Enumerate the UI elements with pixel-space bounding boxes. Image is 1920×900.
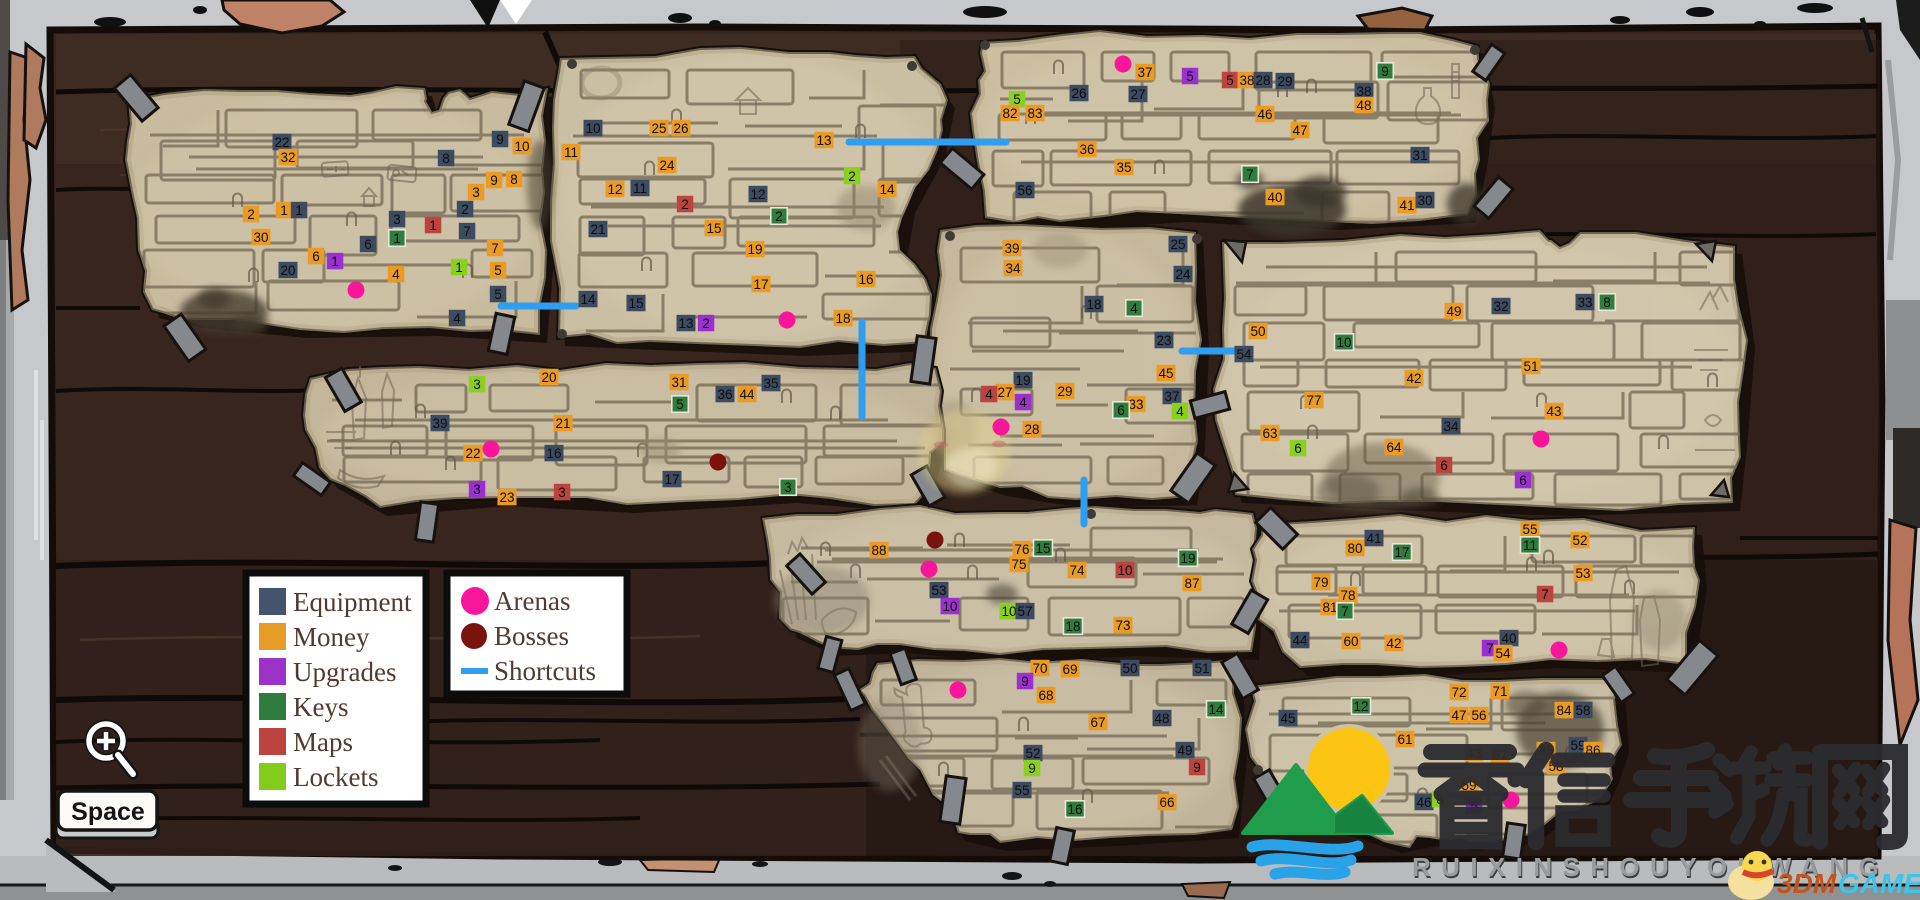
svg-text:77: 77	[1306, 393, 1321, 408]
svg-text:26: 26	[1071, 86, 1086, 101]
svg-text:2: 2	[702, 316, 710, 331]
svg-text:Lockets: Lockets	[293, 762, 378, 792]
svg-text:4: 4	[985, 387, 993, 402]
svg-text:9: 9	[1021, 674, 1029, 689]
svg-text:37: 37	[1164, 389, 1179, 404]
svg-text:31: 31	[671, 375, 686, 390]
svg-text:1: 1	[331, 254, 339, 269]
svg-text:38: 38	[1356, 84, 1371, 99]
svg-text:25: 25	[1170, 237, 1185, 252]
svg-text:26: 26	[673, 121, 688, 136]
svg-text:14: 14	[580, 292, 596, 307]
svg-text:Maps: Maps	[293, 727, 353, 757]
svg-text:32: 32	[280, 150, 295, 165]
svg-text:21: 21	[590, 222, 605, 237]
svg-text:47: 47	[1292, 123, 1307, 138]
svg-text:56: 56	[1017, 183, 1032, 198]
svg-text:23: 23	[1156, 333, 1171, 348]
svg-text:14: 14	[879, 182, 895, 197]
svg-text:29: 29	[1277, 74, 1292, 89]
svg-text:66: 66	[1159, 795, 1174, 810]
svg-text:59: 59	[1570, 738, 1585, 753]
svg-text:6: 6	[364, 237, 372, 252]
svg-text:27: 27	[997, 385, 1012, 400]
svg-text:80: 80	[1347, 541, 1362, 556]
svg-text:41: 41	[1366, 531, 1381, 546]
svg-text:10: 10	[1336, 335, 1351, 350]
svg-text:10: 10	[1117, 563, 1132, 578]
svg-text:15: 15	[628, 296, 643, 311]
svg-text:4: 4	[453, 311, 461, 326]
svg-text:GAME: GAME	[1838, 868, 1920, 899]
svg-text:49: 49	[1446, 304, 1461, 319]
svg-text:25: 25	[651, 121, 666, 136]
svg-text:6: 6	[1440, 458, 1448, 473]
svg-text:5: 5	[494, 287, 502, 302]
svg-text:47: 47	[1451, 708, 1466, 723]
svg-text:5: 5	[1226, 73, 1234, 88]
svg-text:6: 6	[1117, 403, 1125, 418]
svg-text:82: 82	[1002, 106, 1017, 121]
svg-text:54: 54	[1495, 646, 1511, 661]
svg-text:9: 9	[1381, 64, 1389, 79]
svg-text:6: 6	[1294, 441, 1302, 456]
svg-text:19: 19	[747, 242, 762, 257]
svg-text:9: 9	[1193, 760, 1201, 775]
svg-text:64: 64	[1386, 440, 1402, 455]
svg-text:60: 60	[1343, 634, 1358, 649]
svg-text:1: 1	[295, 203, 303, 218]
svg-text:32: 32	[1493, 299, 1508, 314]
svg-text:63: 63	[1262, 426, 1277, 441]
svg-text:52: 52	[1025, 746, 1040, 761]
svg-text:46: 46	[1257, 107, 1272, 122]
svg-text:55: 55	[1522, 522, 1537, 537]
svg-text:4: 4	[392, 267, 400, 282]
svg-text:11: 11	[633, 181, 647, 196]
svg-text:45: 45	[1280, 711, 1295, 726]
svg-text:29: 29	[1057, 384, 1072, 399]
svg-text:39: 39	[1004, 241, 1019, 256]
svg-text:83: 83	[1027, 106, 1042, 121]
svg-text:45: 45	[1158, 366, 1173, 381]
svg-text:5: 5	[1013, 92, 1021, 107]
svg-text:28: 28	[1255, 73, 1270, 88]
svg-text:3: 3	[784, 480, 792, 495]
svg-text:10: 10	[514, 139, 529, 154]
svg-text:3: 3	[473, 377, 481, 392]
svg-text:5: 5	[1186, 69, 1194, 84]
svg-text:7: 7	[463, 224, 471, 239]
svg-text:72: 72	[1451, 685, 1466, 700]
svg-text:Upgrades: Upgrades	[293, 657, 396, 687]
svg-text:39: 39	[432, 416, 447, 431]
svg-text:75: 75	[1011, 557, 1026, 572]
svg-text:1: 1	[393, 231, 401, 246]
svg-text:17: 17	[753, 277, 768, 292]
svg-text:Space: Space	[71, 798, 145, 826]
svg-text:Keys: Keys	[293, 692, 349, 722]
svg-text:78: 78	[1340, 588, 1355, 603]
svg-text:44: 44	[739, 387, 755, 402]
svg-text:Equipment: Equipment	[293, 587, 412, 617]
svg-text:5: 5	[494, 263, 502, 278]
svg-text:11: 11	[564, 145, 578, 160]
svg-text:7: 7	[1246, 167, 1254, 182]
svg-text:17: 17	[664, 472, 679, 487]
svg-text:3: 3	[558, 485, 566, 500]
svg-text:9: 9	[490, 173, 498, 188]
svg-text:8: 8	[1603, 295, 1611, 310]
svg-text:3: 3	[472, 185, 480, 200]
svg-text:50: 50	[1250, 324, 1265, 339]
svg-text:6: 6	[1519, 473, 1527, 488]
svg-text:16: 16	[1067, 802, 1082, 817]
svg-text:4: 4	[1130, 301, 1138, 316]
svg-text:42: 42	[1386, 636, 1401, 651]
svg-text:16: 16	[858, 272, 873, 287]
svg-text:37: 37	[1137, 65, 1152, 80]
svg-text:4: 4	[1019, 395, 1027, 410]
svg-text:40: 40	[1501, 631, 1516, 646]
svg-text:3: 3	[473, 482, 481, 497]
svg-text:20: 20	[541, 370, 556, 385]
svg-text:18: 18	[1086, 297, 1101, 312]
svg-text:10: 10	[942, 599, 957, 614]
svg-text:22: 22	[274, 135, 289, 150]
svg-text:19: 19	[1015, 373, 1030, 388]
svg-text:58: 58	[1575, 703, 1590, 718]
svg-text:Money: Money	[293, 622, 370, 652]
svg-text:2: 2	[848, 169, 856, 184]
svg-text:11: 11	[1523, 538, 1537, 553]
svg-text:49: 49	[1177, 743, 1192, 758]
svg-text:8: 8	[442, 151, 450, 166]
svg-text:Shortcuts: Shortcuts	[494, 656, 596, 686]
svg-text:9: 9	[1028, 761, 1036, 776]
svg-text:20: 20	[280, 263, 295, 278]
svg-text:34: 34	[1005, 261, 1021, 276]
svg-text:51: 51	[1194, 661, 1209, 676]
svg-text:57: 57	[1017, 604, 1032, 619]
svg-text:17: 17	[1394, 545, 1409, 560]
svg-text:12: 12	[607, 182, 622, 197]
svg-text:2: 2	[681, 197, 689, 212]
svg-text:42: 42	[1406, 371, 1421, 386]
svg-text:15: 15	[1035, 541, 1050, 556]
svg-text:24: 24	[1175, 267, 1191, 282]
svg-text:74: 74	[1069, 563, 1085, 578]
svg-text:3: 3	[393, 212, 401, 227]
svg-text:13: 13	[678, 316, 693, 331]
svg-text:71: 71	[1492, 684, 1507, 699]
svg-text:53: 53	[1575, 566, 1590, 581]
svg-text:76: 76	[1014, 542, 1029, 557]
svg-text:46: 46	[1416, 795, 1431, 810]
svg-text:87: 87	[1184, 576, 1199, 591]
svg-text:33: 33	[1577, 295, 1592, 310]
svg-text:43: 43	[1546, 404, 1561, 419]
svg-text:2: 2	[461, 202, 469, 217]
svg-text:8: 8	[510, 172, 518, 187]
svg-text:67: 67	[1090, 715, 1105, 730]
svg-text:2: 2	[247, 207, 255, 222]
svg-text:4: 4	[1176, 404, 1184, 419]
svg-text:52: 52	[1572, 533, 1587, 548]
svg-text:18: 18	[1065, 619, 1080, 634]
svg-text:2: 2	[775, 209, 783, 224]
svg-text:7: 7	[1486, 641, 1494, 656]
svg-text:88: 88	[871, 543, 886, 558]
svg-text:9: 9	[496, 132, 504, 147]
svg-text:54: 54	[1236, 347, 1252, 362]
svg-text:61: 61	[1397, 732, 1412, 747]
svg-text:44: 44	[1292, 633, 1308, 648]
svg-text:38: 38	[1239, 73, 1254, 88]
svg-text:36: 36	[1079, 142, 1094, 157]
svg-text:24: 24	[659, 158, 675, 173]
svg-text:10: 10	[585, 121, 600, 136]
svg-text:16: 16	[546, 446, 561, 461]
svg-text:84: 84	[1556, 703, 1572, 718]
svg-text:35: 35	[763, 376, 778, 391]
svg-text:19: 19	[1180, 551, 1195, 566]
svg-text:15: 15	[706, 221, 721, 236]
svg-text:41: 41	[1399, 198, 1414, 213]
svg-text:50: 50	[1122, 661, 1137, 676]
svg-text:12: 12	[1353, 699, 1368, 714]
svg-text:Bosses: Bosses	[494, 621, 569, 651]
svg-text:Arenas: Arenas	[494, 586, 570, 616]
svg-text:55: 55	[1014, 783, 1029, 798]
svg-text:53: 53	[931, 583, 946, 598]
svg-text:30: 30	[1417, 193, 1432, 208]
svg-text:68: 68	[1038, 688, 1053, 703]
svg-text:3DM: 3DM	[1777, 868, 1837, 899]
svg-text:30: 30	[253, 230, 268, 245]
svg-text:5: 5	[676, 397, 684, 412]
svg-text:14: 14	[1208, 702, 1224, 717]
svg-text:13: 13	[816, 133, 831, 148]
svg-text:81: 81	[1322, 600, 1337, 615]
svg-text:23: 23	[499, 490, 514, 505]
svg-text:7: 7	[1341, 604, 1349, 619]
svg-text:10: 10	[1001, 604, 1016, 619]
svg-text:33: 33	[1128, 397, 1143, 412]
svg-text:51: 51	[1523, 359, 1538, 374]
svg-text:12: 12	[750, 187, 765, 202]
svg-text:34: 34	[1443, 419, 1459, 434]
svg-text:22: 22	[465, 446, 480, 461]
svg-text:48: 48	[1356, 98, 1371, 113]
svg-text:70: 70	[1032, 661, 1047, 676]
svg-text:1: 1	[455, 260, 463, 275]
svg-text:56: 56	[1471, 708, 1486, 723]
svg-text:31: 31	[1412, 148, 1427, 163]
svg-text:7: 7	[1541, 587, 1549, 602]
svg-text:79: 79	[1313, 575, 1328, 590]
svg-text:69: 69	[1062, 662, 1077, 677]
svg-text:36: 36	[717, 387, 732, 402]
svg-text:7: 7	[491, 241, 499, 256]
svg-text:73: 73	[1115, 618, 1130, 633]
svg-text:1: 1	[280, 203, 288, 218]
svg-text:35: 35	[1116, 160, 1131, 175]
svg-text:48: 48	[1154, 711, 1169, 726]
svg-text:40: 40	[1267, 190, 1282, 205]
svg-text:21: 21	[555, 416, 570, 431]
svg-text:18: 18	[835, 311, 850, 326]
svg-text:6: 6	[312, 249, 320, 264]
svg-text:1: 1	[429, 218, 437, 233]
svg-text:28: 28	[1024, 422, 1039, 437]
svg-text:27: 27	[1130, 87, 1145, 102]
